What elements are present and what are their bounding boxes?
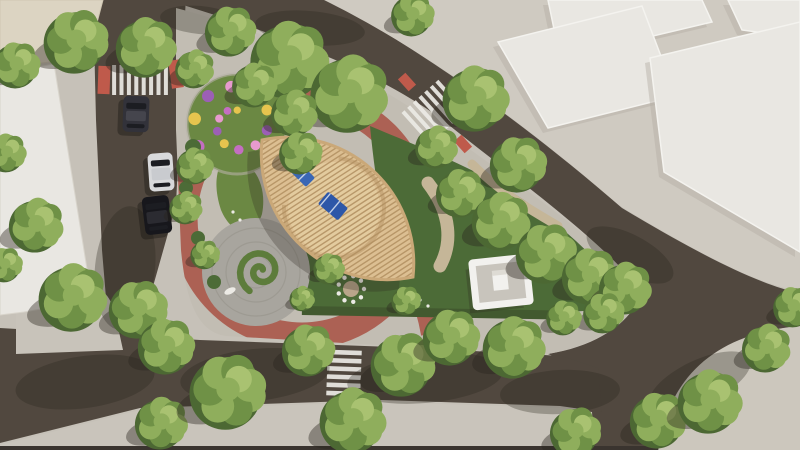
tree-puff <box>1 146 13 158</box>
tree-puff <box>453 184 468 199</box>
tree-puff <box>493 210 511 228</box>
tree-puff <box>343 408 363 428</box>
flower-cluster <box>224 107 232 115</box>
tree-puff <box>189 159 200 170</box>
tree-puff <box>158 336 175 353</box>
tree-puff <box>28 215 45 232</box>
flower-cluster <box>213 127 222 136</box>
tree-puff <box>130 298 148 316</box>
tree-puff <box>301 340 317 356</box>
car-windshield <box>126 103 146 110</box>
tree-puff <box>154 413 170 429</box>
tree-puff <box>10 56 24 70</box>
tree-puff <box>294 145 307 158</box>
tree-puff <box>324 263 334 273</box>
tree-puff <box>248 77 262 91</box>
flower-cluster <box>251 140 261 150</box>
tree-puff <box>700 389 720 409</box>
tree-puff <box>201 249 210 258</box>
tree-puff <box>288 104 302 118</box>
tree-puff <box>466 86 486 106</box>
tree-puff <box>181 202 191 212</box>
car-roof <box>151 167 171 180</box>
tree-puff <box>393 352 413 372</box>
kiosk-seat <box>492 273 509 290</box>
tree-puff <box>402 295 411 304</box>
seat-chair <box>359 295 363 299</box>
tree-puff <box>568 423 584 439</box>
zebra-stripe <box>164 65 168 95</box>
flower-cluster <box>234 107 241 114</box>
flower-cluster <box>215 114 223 122</box>
white-flower <box>238 218 241 221</box>
tree-puff <box>598 305 611 318</box>
tree-puff <box>137 36 156 55</box>
car-roof <box>126 111 146 122</box>
tree-puff <box>505 336 524 355</box>
tree-puff <box>537 242 556 261</box>
aerial-park-render <box>0 0 800 450</box>
tree-puff <box>430 139 443 152</box>
tree-puff <box>189 62 201 74</box>
tree-puff <box>338 79 362 103</box>
bush <box>207 275 221 289</box>
tree-puff <box>66 29 86 49</box>
tree-puff <box>0 258 11 269</box>
tree-puff <box>216 378 239 401</box>
seat-chair <box>342 298 346 302</box>
render-canvas <box>0 0 800 450</box>
tree-puff <box>443 327 460 344</box>
flower-cluster <box>220 139 229 148</box>
tree-puff <box>278 45 302 69</box>
tree-puff <box>650 410 667 427</box>
white-flower <box>426 304 429 307</box>
tree-puff <box>510 154 527 171</box>
white-flower <box>231 210 234 213</box>
car-rear-window <box>127 124 145 129</box>
tree-puff <box>63 285 84 306</box>
tree-puff <box>618 278 634 294</box>
tree-puff <box>298 294 306 302</box>
tactile-pad <box>98 66 111 94</box>
flower-cluster <box>202 90 214 102</box>
seat-chair <box>351 300 355 304</box>
flower-cluster <box>188 113 201 126</box>
flower-cluster <box>234 145 243 154</box>
tree-puff <box>788 299 800 312</box>
car-silver <box>142 152 175 196</box>
tree-puff <box>759 339 774 354</box>
car-dark-gray <box>117 95 149 136</box>
seat-chair <box>337 291 341 295</box>
tree-puff <box>582 266 599 283</box>
tree-puff <box>406 7 419 20</box>
tree-puff <box>559 311 570 322</box>
flower-cluster <box>262 105 273 116</box>
tree-puff <box>223 22 239 38</box>
